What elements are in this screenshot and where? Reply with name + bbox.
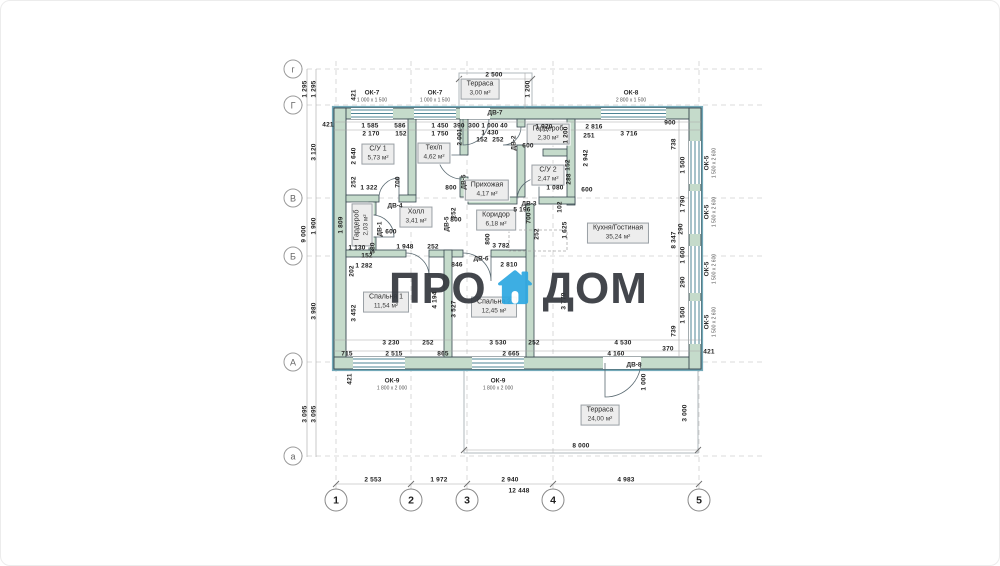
- dimension-label: 865: [437, 351, 448, 358]
- grid-bubble-col: 2: [400, 489, 423, 512]
- dimension-label: 252: [492, 137, 503, 144]
- dimension-label: 2 001: [457, 128, 464, 145]
- dimension-label: 1 585: [361, 123, 378, 130]
- dimension-label: 1 920: [535, 124, 552, 131]
- dimension-label: 800: [485, 233, 492, 244]
- room-label-hall: Холл3,41 м²: [399, 207, 432, 228]
- dimension-label: 290: [678, 223, 685, 234]
- room-label-wardrobe1: Гардероб2,03 м²: [352, 204, 373, 247]
- door-label: ДВ-1: [377, 221, 384, 236]
- door-label: ДВ-7: [487, 110, 502, 117]
- window-label: ОК-51 500 х 2 600: [704, 197, 719, 227]
- room-label-kitchen-living: Кухня/Гостиная35,24 м²: [587, 223, 649, 244]
- floor-plan-canvas: г Г В Б А а 1 2 3 4 5 Терраса3,00 м² С/У…: [0, 0, 1000, 566]
- grid-bubble-col: 5: [688, 489, 711, 512]
- dimension-label: 2 942: [583, 149, 590, 166]
- dimension-label: 1 972: [430, 477, 447, 484]
- grid-bubble-row: Б: [284, 247, 303, 266]
- grid-bubble-col: 3: [456, 489, 479, 512]
- grid-bubble-col: 1: [325, 489, 348, 512]
- window-label: ОК-82 800 х 1 500: [616, 90, 646, 105]
- door-label: ДВ-5: [461, 174, 468, 189]
- dimension-label: 739: [671, 325, 678, 336]
- dimension-label: 1 750: [431, 131, 448, 138]
- room-label-wc2: С/У 22,47 м²: [531, 165, 564, 186]
- dimension-label: 4 530: [614, 340, 631, 347]
- dimension-label: 586: [394, 123, 405, 130]
- dimension-label: 2 940: [501, 477, 518, 484]
- window-label: ОК-91 800 х 2 000: [483, 378, 513, 393]
- grid-bubble-row: г: [284, 60, 303, 79]
- dimension-label: 252: [351, 176, 358, 187]
- dimension-label: 3 000: [682, 404, 689, 421]
- dimension-label: 152: [395, 131, 406, 138]
- dimension-label: 1 948: [396, 244, 413, 251]
- dimension-label: 1 295: [302, 80, 309, 97]
- dimension-label: 3 782: [492, 243, 509, 250]
- dimension-label: 152: [565, 159, 572, 170]
- dimension-label: 1 000: [641, 373, 648, 390]
- dimension-label: 600: [385, 229, 396, 236]
- window-label: ОК-51 500 х 2 600: [704, 254, 719, 284]
- dimension-label: 900: [664, 120, 675, 127]
- window-label: ОК-71 000 х 1 500: [357, 90, 387, 105]
- dimension-label: 1 322: [360, 185, 377, 192]
- dimension-label: 1 282: [355, 263, 372, 270]
- grid-bubble-row: В: [284, 189, 303, 208]
- grid-bubble-row: Г: [284, 96, 303, 115]
- dimension-label: 1 500: [680, 156, 687, 173]
- dimension-label: 251: [583, 133, 594, 140]
- dimension-label: 1 500: [680, 306, 687, 323]
- dimension-label: 421: [347, 373, 354, 384]
- dimension-label: 4 160: [607, 351, 624, 358]
- dimension-label: 3 716: [620, 131, 637, 138]
- door-label: ДВ-6: [473, 256, 488, 263]
- dimension-label: 252: [451, 207, 458, 218]
- dimension-label: 252: [534, 228, 541, 239]
- dimension-label: 700: [526, 212, 533, 223]
- dimension-label: 1 809: [338, 216, 345, 233]
- dimension-label: 102: [557, 201, 564, 212]
- dimension-label: 3 980: [311, 302, 318, 319]
- dimension-label: 738: [671, 138, 678, 149]
- dimension-label: 8 347: [671, 231, 678, 248]
- dimension-label: 288: [566, 173, 573, 184]
- dimension-label: 1 450: [431, 123, 448, 130]
- dimension-label: 1 430: [481, 130, 498, 137]
- dimension-label: 12 448: [508, 488, 529, 495]
- dimension-label: 1 600: [680, 246, 687, 263]
- dimension-label: 1 625: [562, 221, 569, 238]
- room-label-terrace-top: Терраса3,00 м²: [461, 79, 500, 100]
- dimension-label: 252: [422, 340, 433, 347]
- dimension-label: 1 790: [680, 195, 687, 212]
- dimension-label: 1 200: [563, 126, 570, 143]
- dimension-label: 3 120: [311, 143, 318, 160]
- dimension-label: 202: [349, 265, 356, 276]
- dimension-label: 300: [468, 123, 479, 130]
- dimension-label: 2 665: [502, 351, 519, 358]
- dimension-label: 2 553: [364, 477, 381, 484]
- dimension-label: 3 095: [311, 405, 318, 422]
- dimension-label: 40: [500, 123, 508, 130]
- dimension-label: 9 000: [301, 225, 308, 242]
- dimension-label: 8 000: [572, 443, 589, 450]
- dimension-label: 152: [361, 253, 372, 260]
- dimension-label: 2 500: [485, 72, 502, 79]
- dimension-label: 2 515: [385, 351, 402, 358]
- dimension-label: 1 900: [311, 217, 318, 234]
- watermark-text-left: ПРО: [389, 267, 487, 311]
- dimension-label: 1 200: [525, 80, 532, 97]
- dimension-label: 290: [680, 276, 687, 287]
- dimension-label: 3 530: [489, 340, 506, 347]
- dimension-label: 2 640: [351, 147, 358, 164]
- door-label: ДВ-4: [387, 203, 402, 210]
- room-label-corridor: Коридор6,18 м²: [476, 210, 516, 231]
- grid-bubble-row: а: [284, 447, 303, 466]
- dimension-label: 421: [351, 89, 358, 100]
- watermark-text-right: ДОМ: [543, 267, 648, 311]
- room-label-tech: Тех/п4,62 м²: [417, 143, 450, 164]
- dimension-label: 3 095: [302, 405, 309, 422]
- room-label-wc1: С/У 15,73 м²: [361, 144, 394, 165]
- dimension-label: 2 170: [362, 131, 379, 138]
- grid-bubble-col: 4: [542, 489, 565, 512]
- dimension-label: 4 983: [617, 477, 634, 484]
- dimension-label: 715: [341, 351, 352, 358]
- grid-bubble-row: А: [284, 353, 303, 372]
- room-label-terrace-bottom: Терраса24,00 м²: [581, 405, 620, 426]
- dimension-label: 370: [662, 346, 673, 353]
- dimension-label: 800: [445, 185, 456, 192]
- window-label: ОК-51 500 х 2 600: [704, 307, 719, 337]
- dimension-label: 421: [322, 122, 333, 129]
- dimension-label: 252: [427, 244, 438, 251]
- door-label: ДВ-8: [626, 362, 641, 369]
- dimension-label: 700: [395, 176, 402, 187]
- window-label: ОК-51 500 х 2 600: [704, 148, 719, 178]
- dimension-label: 252: [528, 340, 539, 347]
- dimension-label: 1 000: [481, 123, 498, 130]
- watermark: ПРО ДОМ: [389, 267, 648, 311]
- window-label: ОК-71 000 х 1 500: [420, 90, 450, 105]
- dimension-label: 2 816: [585, 124, 602, 131]
- room-label-entry: Прихожая4,17 м²: [465, 180, 509, 201]
- dimension-label: 600: [522, 143, 533, 150]
- dimension-label: 152: [476, 137, 487, 144]
- door-label: ДВ-2: [511, 135, 518, 150]
- dimension-label: 1 080: [546, 185, 563, 192]
- dimension-label: 1 130: [348, 245, 365, 252]
- dimension-label: 3 452: [351, 304, 358, 321]
- house-icon: [494, 266, 536, 308]
- dimension-label: 3 230: [382, 340, 399, 347]
- dimension-label: 1 295: [311, 80, 318, 97]
- dimension-label: 600: [581, 187, 592, 194]
- window-label: ОК-91 800 х 2 000: [377, 378, 407, 393]
- dimension-label: 421: [703, 349, 714, 356]
